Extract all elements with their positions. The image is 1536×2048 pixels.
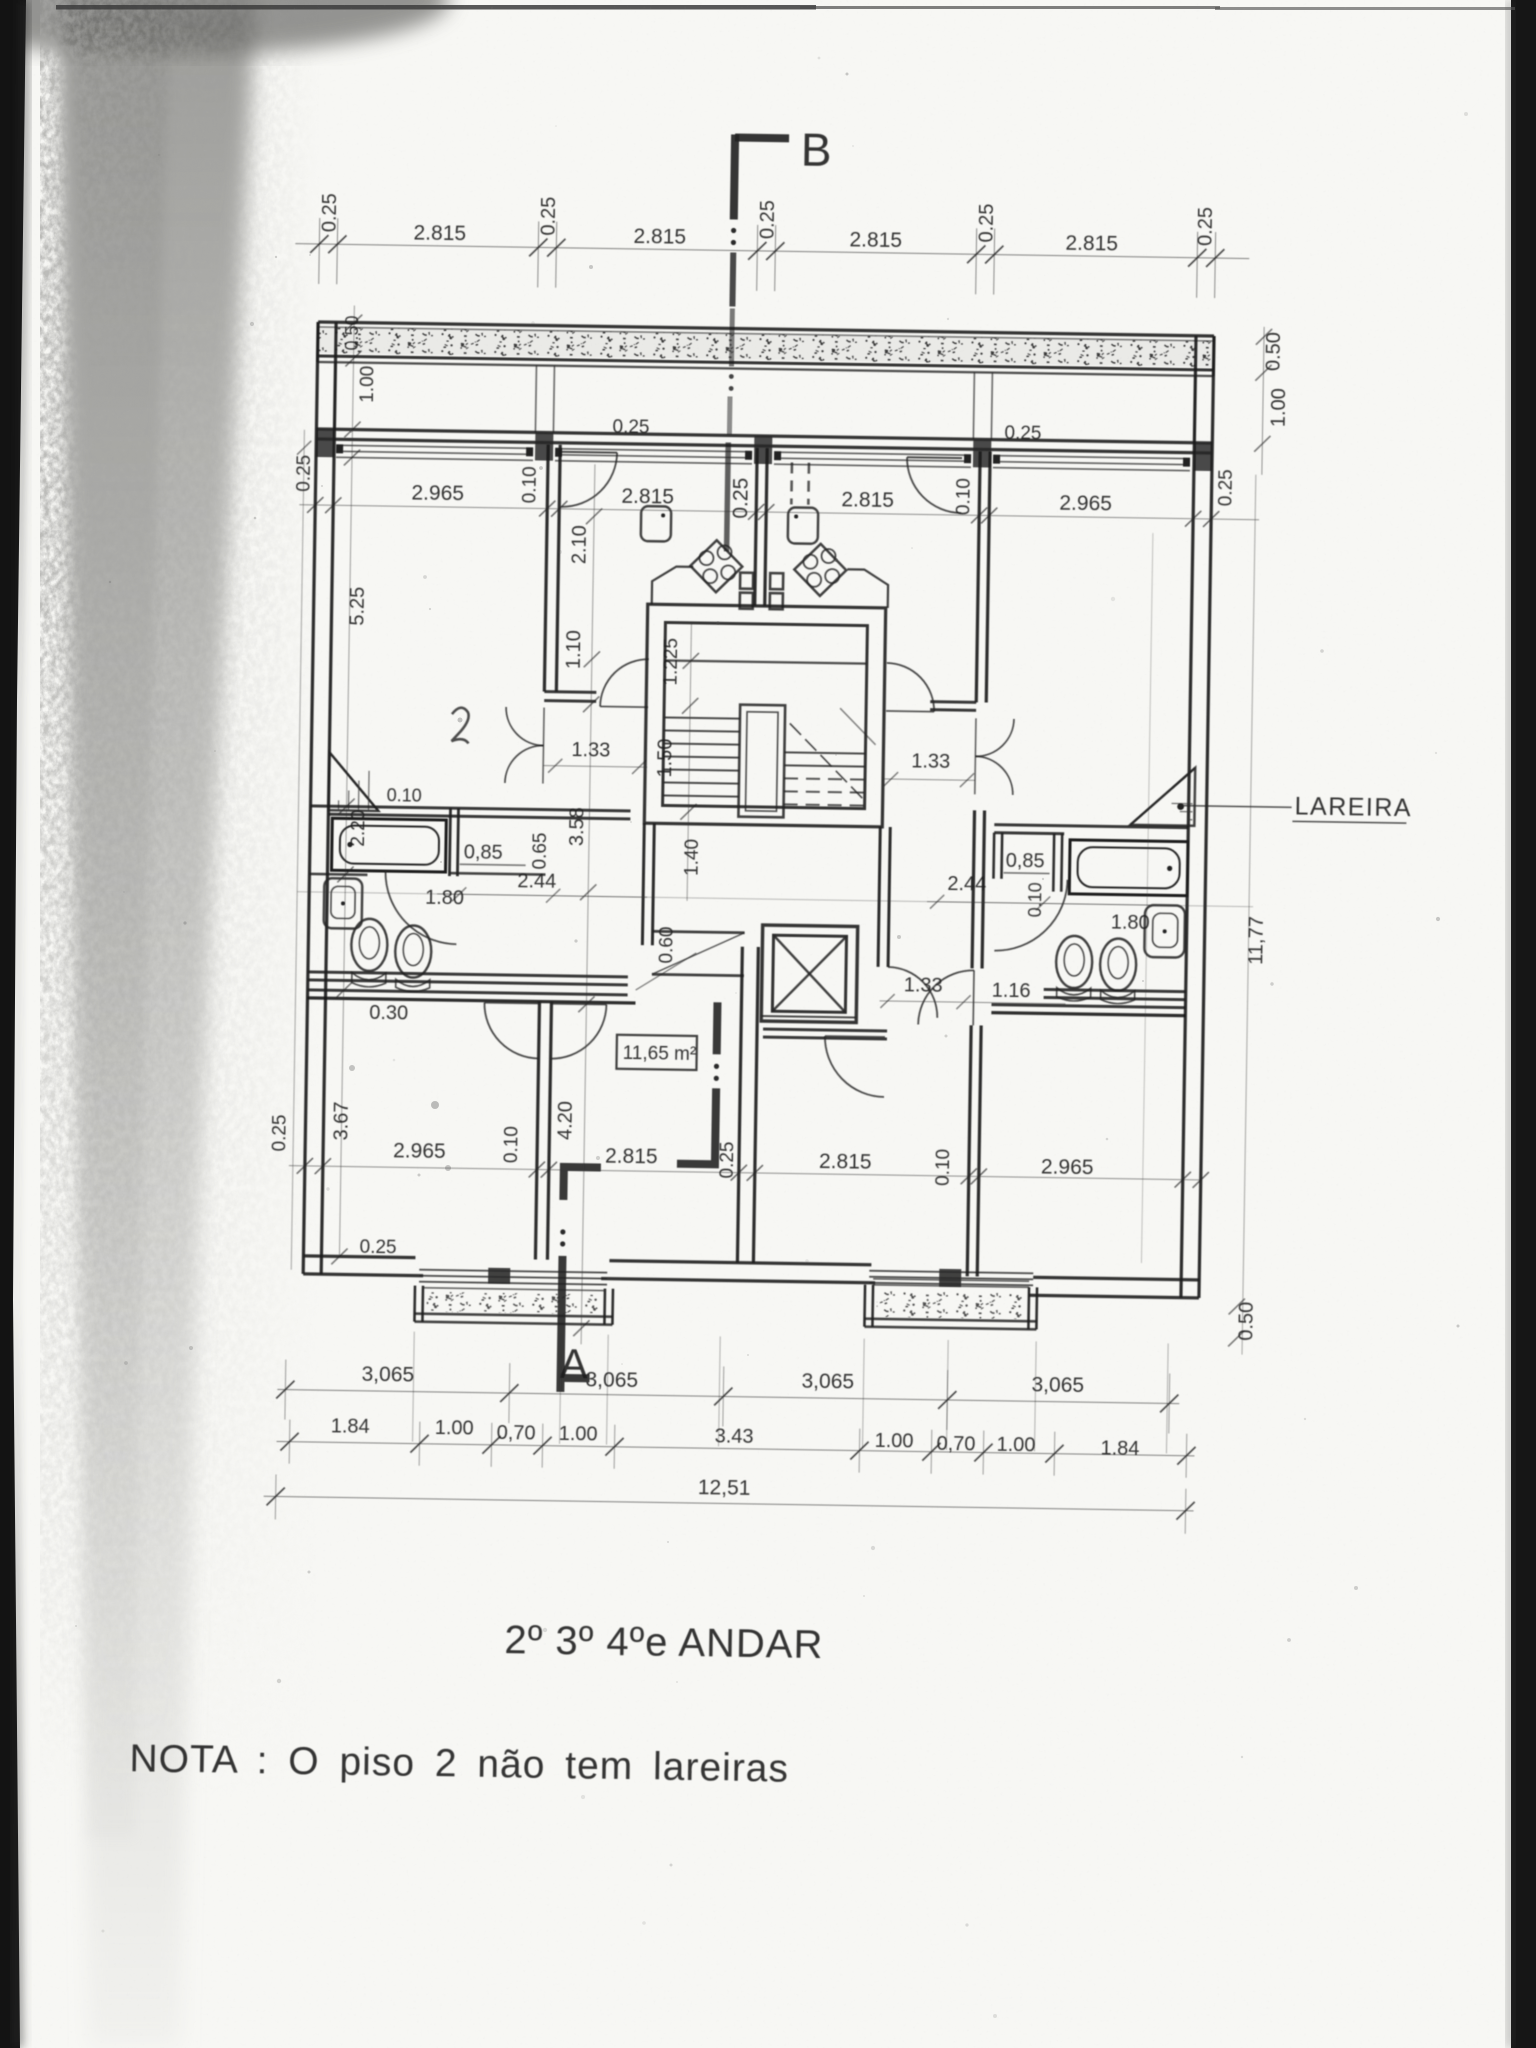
- svg-text:5.25: 5.25: [346, 587, 369, 626]
- svg-text:2.815: 2.815: [1065, 232, 1118, 256]
- svg-text:1.33: 1.33: [571, 739, 610, 762]
- svg-text:0,70: 0,70: [497, 1422, 536, 1445]
- svg-text:2.965: 2.965: [1059, 492, 1112, 516]
- svg-text:0.10: 0.10: [1025, 882, 1046, 917]
- svg-text:1.00: 1.00: [559, 1423, 598, 1446]
- svg-text:12,51: 12,51: [698, 1476, 751, 1500]
- svg-text:0.10: 0.10: [501, 1126, 523, 1163]
- svg-text:2.965: 2.965: [393, 1139, 446, 1163]
- svg-text:1.10: 1.10: [563, 630, 586, 669]
- svg-text:2.10: 2.10: [568, 525, 591, 564]
- svg-text:0.25: 0.25: [1004, 423, 1041, 445]
- svg-text:1.84: 1.84: [1100, 1437, 1139, 1460]
- svg-text:1.33: 1.33: [904, 974, 943, 997]
- svg-text:2.44: 2.44: [517, 870, 556, 893]
- svg-text:1.00: 1.00: [1268, 388, 1291, 427]
- svg-text:0.25: 0.25: [319, 193, 342, 232]
- svg-text:1.00: 1.00: [996, 1434, 1035, 1457]
- svg-text:2.44: 2.44: [947, 873, 986, 896]
- svg-text:1.00: 1.00: [874, 1430, 913, 1453]
- svg-text:0.30: 0.30: [369, 1002, 408, 1025]
- svg-text:3.58: 3.58: [566, 807, 589, 846]
- svg-text:3.43: 3.43: [714, 1425, 753, 1448]
- svg-text:4.20: 4.20: [554, 1101, 577, 1140]
- svg-text:2.965: 2.965: [411, 481, 464, 505]
- svg-text:0.10: 0.10: [519, 466, 541, 503]
- svg-text:3,065: 3,065: [585, 1368, 638, 1392]
- svg-text:0.25: 0.25: [756, 200, 779, 239]
- svg-text:3.67: 3.67: [330, 1101, 353, 1140]
- svg-text:0.25: 0.25: [359, 1237, 396, 1259]
- svg-text:0.25: 0.25: [717, 1141, 739, 1178]
- svg-text:1.84: 1.84: [331, 1415, 370, 1438]
- svg-text:0.25: 0.25: [1215, 469, 1237, 506]
- svg-text:2.815: 2.815: [413, 221, 466, 245]
- svg-text:LAREIRA: LAREIRA: [1294, 792, 1412, 822]
- svg-text:2.815: 2.815: [605, 1145, 658, 1169]
- svg-text:0.25: 0.25: [269, 1114, 291, 1151]
- svg-text:2.815: 2.815: [849, 228, 902, 252]
- svg-text:3,065: 3,065: [1031, 1373, 1084, 1397]
- svg-text:2º 3º 4ºe ANDAR: 2º 3º 4ºe ANDAR: [504, 1618, 824, 1667]
- svg-text:0.10: 0.10: [953, 478, 975, 515]
- svg-text:1.00: 1.00: [357, 366, 379, 403]
- svg-text:0,70: 0,70: [936, 1433, 975, 1456]
- svg-text:2.815: 2.815: [841, 488, 894, 512]
- svg-text:1.80: 1.80: [1111, 911, 1150, 934]
- svg-text:1.40: 1.40: [681, 839, 703, 876]
- svg-text:0.65: 0.65: [530, 832, 552, 869]
- svg-text:1.80: 1.80: [425, 887, 464, 910]
- svg-text:1.50: 1.50: [654, 738, 677, 777]
- svg-text:0.60: 0.60: [656, 926, 678, 963]
- svg-text:2.965: 2.965: [1041, 1155, 1094, 1179]
- svg-text:2.815: 2.815: [621, 485, 674, 509]
- svg-text:0.50: 0.50: [1262, 332, 1285, 371]
- svg-text:2.20: 2.20: [348, 810, 370, 847]
- svg-text:0.25: 0.25: [538, 196, 561, 235]
- svg-text:11,77: 11,77: [1245, 916, 1268, 965]
- svg-text:0.25: 0.25: [975, 203, 998, 242]
- svg-text:1.16: 1.16: [992, 980, 1031, 1003]
- svg-text:A: A: [559, 1340, 588, 1387]
- svg-text:2.815: 2.815: [819, 1150, 872, 1174]
- svg-text:B: B: [800, 124, 832, 176]
- svg-text:11,65 m²: 11,65 m²: [623, 1043, 697, 1065]
- svg-text:0.25: 0.25: [729, 478, 753, 519]
- svg-text:0.50: 0.50: [1235, 1302, 1258, 1341]
- svg-text:1.33: 1.33: [911, 750, 950, 773]
- svg-text:0.10: 0.10: [933, 1149, 955, 1186]
- svg-text:0.10: 0.10: [387, 785, 422, 806]
- svg-text:0,85: 0,85: [464, 841, 503, 864]
- svg-text:0.50: 0.50: [342, 315, 363, 350]
- svg-text:1.225: 1.225: [660, 638, 682, 686]
- svg-text:3,065: 3,065: [361, 1363, 414, 1387]
- svg-text:2.815: 2.815: [633, 225, 686, 249]
- svg-text:0.25: 0.25: [1194, 207, 1217, 246]
- svg-text:0,85: 0,85: [1006, 850, 1045, 873]
- svg-text:1.00: 1.00: [435, 1417, 474, 1440]
- svg-text:3,065: 3,065: [801, 1370, 854, 1394]
- svg-text:0.25: 0.25: [612, 417, 649, 439]
